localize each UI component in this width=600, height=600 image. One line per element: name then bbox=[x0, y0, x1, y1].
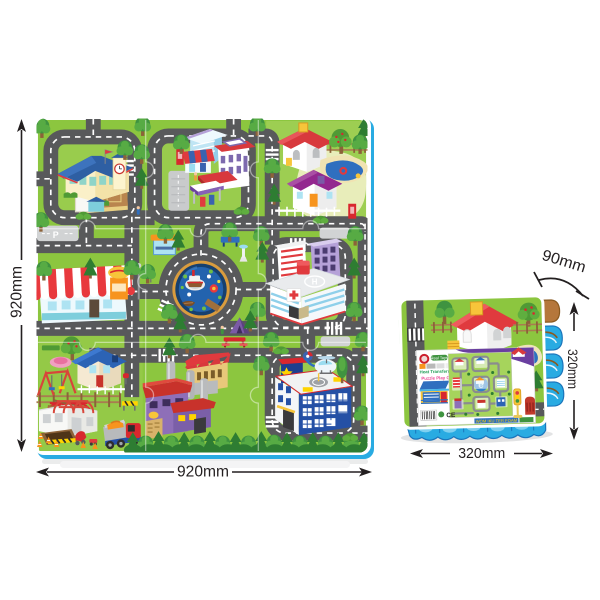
svg-text:P: P bbox=[53, 230, 59, 240]
svg-text:320mm: 320mm bbox=[565, 349, 581, 389]
svg-text:H: H bbox=[312, 277, 318, 286]
svg-text:920mm: 920mm bbox=[9, 266, 26, 318]
svg-text:CE: CE bbox=[446, 412, 456, 419]
svg-text:320mm: 320mm bbox=[458, 446, 505, 462]
svg-text:Real Toys: Real Toys bbox=[430, 355, 448, 360]
svg-text:920mm: 920mm bbox=[177, 464, 229, 481]
